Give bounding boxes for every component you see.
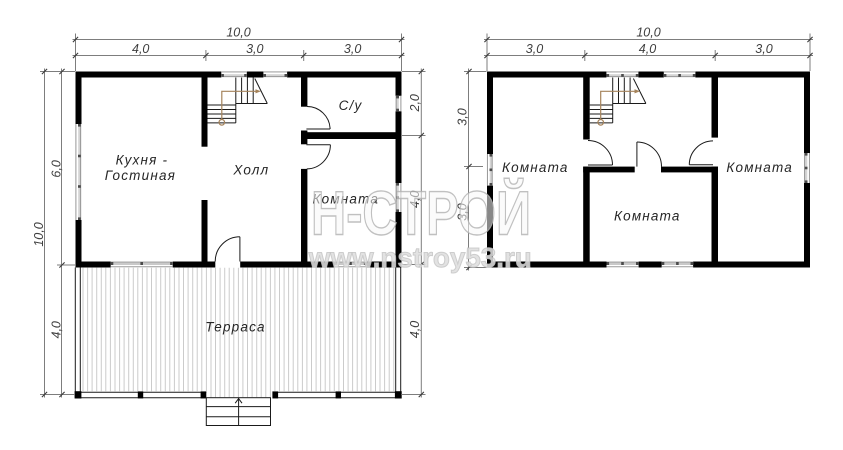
svg-text:4,0: 4,0	[408, 321, 422, 338]
svg-text:Н-СТРОЙ: Н-СТРОЙ	[311, 179, 531, 249]
svg-text:6,0: 6,0	[50, 160, 64, 177]
svg-text:10,0: 10,0	[636, 25, 660, 39]
svg-text:www.nstroy53.ru: www.nstroy53.ru	[308, 242, 532, 273]
svg-text:Комната: Комната	[726, 160, 793, 175]
svg-text:Комната: Комната	[502, 160, 569, 175]
svg-text:Гостиная: Гостиная	[105, 168, 176, 183]
svg-text:4,0: 4,0	[639, 42, 656, 56]
svg-text:10,0: 10,0	[226, 25, 250, 39]
svg-text:2,0: 2,0	[408, 94, 422, 112]
svg-text:3,0: 3,0	[755, 42, 772, 56]
svg-text:Комната: Комната	[614, 209, 681, 224]
svg-text:Терраса: Терраса	[205, 319, 266, 334]
svg-text:Холл: Холл	[232, 162, 269, 177]
svg-text:3,0: 3,0	[344, 42, 361, 56]
svg-text:10,0: 10,0	[32, 222, 46, 246]
svg-text:3,0: 3,0	[456, 108, 470, 125]
svg-text:Кухня -: Кухня -	[116, 153, 169, 168]
svg-text:3,0: 3,0	[526, 42, 543, 56]
svg-text:С/у: С/у	[339, 98, 363, 113]
svg-text:3,0: 3,0	[246, 42, 263, 56]
svg-text:4,0: 4,0	[132, 42, 149, 56]
svg-text:4,0: 4,0	[50, 321, 64, 338]
